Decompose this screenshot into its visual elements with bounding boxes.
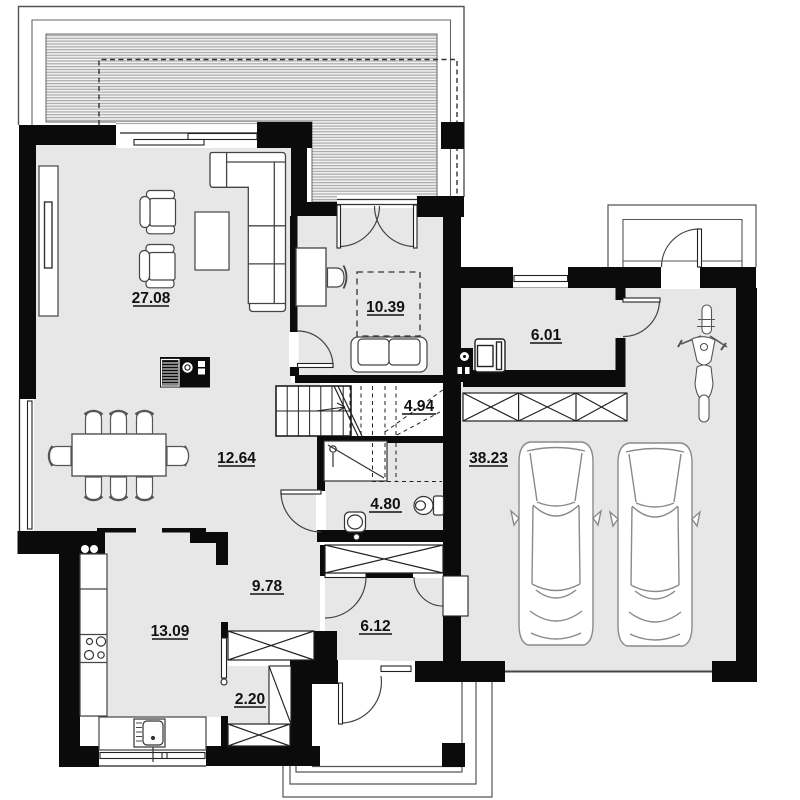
svg-text:9.78: 9.78 xyxy=(252,578,283,595)
svg-text:13.09: 13.09 xyxy=(151,623,190,640)
svg-text:4.80: 4.80 xyxy=(370,496,400,513)
svg-text:12.64: 12.64 xyxy=(217,450,256,467)
svg-text:6.12: 6.12 xyxy=(360,618,390,635)
svg-text:4.94: 4.94 xyxy=(404,398,435,415)
svg-text:2.20: 2.20 xyxy=(235,691,265,708)
svg-text:6.01: 6.01 xyxy=(531,327,562,344)
svg-text:10.39: 10.39 xyxy=(366,299,405,316)
svg-text:27.08: 27.08 xyxy=(132,290,171,307)
svg-text:38.23: 38.23 xyxy=(469,450,508,467)
